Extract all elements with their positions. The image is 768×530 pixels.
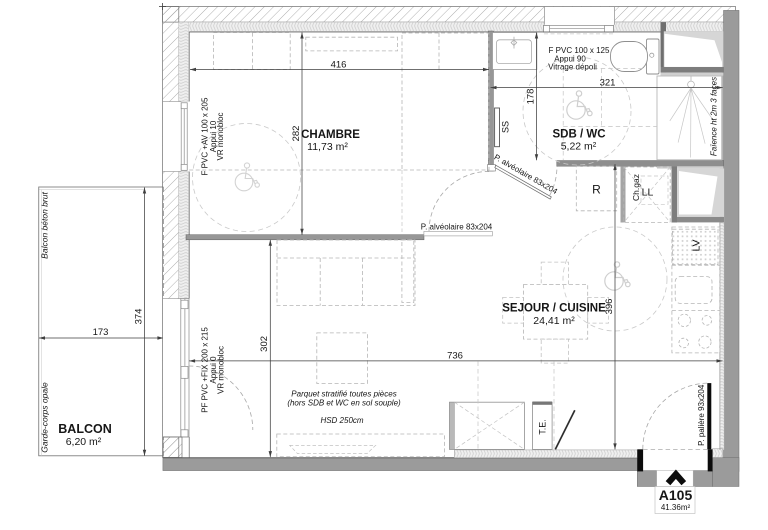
svg-text:Ch.gaz: Ch.gaz	[631, 174, 641, 201]
svg-text:Parquet stratifié toutes pièce: Parquet stratifié toutes pièces	[291, 389, 396, 398]
svg-text:SS: SS	[501, 121, 511, 133]
svg-text:Vitrage dépoli: Vitrage dépoli	[548, 62, 597, 71]
svg-text:CHAMBRE: CHAMBRE	[301, 129, 360, 141]
svg-text:T.E.: T.E.	[538, 419, 548, 435]
svg-text:SEJOUR / CUISINE: SEJOUR / CUISINE	[502, 303, 606, 315]
svg-text:178: 178	[525, 89, 536, 105]
svg-text:P. alvéolaire 83x204: P. alvéolaire 83x204	[421, 223, 493, 232]
svg-text:6,20 m²: 6,20 m²	[66, 436, 102, 448]
svg-text:SDB / WC: SDB / WC	[552, 129, 605, 141]
svg-text:BALCON: BALCON	[58, 422, 111, 436]
svg-text:374: 374	[133, 309, 144, 325]
svg-text:736: 736	[447, 351, 463, 362]
svg-text:24,41 m²: 24,41 m²	[533, 315, 575, 327]
svg-text:41.36m²: 41.36m²	[661, 503, 691, 512]
svg-text:P. palière 93x204: P. palière 93x204	[697, 384, 706, 446]
svg-text:173: 173	[93, 327, 109, 338]
svg-text:HSD 250cm: HSD 250cm	[320, 416, 363, 425]
svg-text:R: R	[592, 183, 601, 197]
svg-text:Balcon béton brut: Balcon béton brut	[40, 192, 50, 259]
svg-text:5,22 m²: 5,22 m²	[561, 141, 597, 153]
svg-text:A105: A105	[659, 487, 693, 503]
svg-text:(hors SDB et WC en sol souple): (hors SDB et WC en sol souple)	[287, 398, 401, 407]
svg-text:11,73 m²: 11,73 m²	[307, 141, 348, 153]
svg-text:416: 416	[331, 59, 347, 70]
svg-text:LL: LL	[642, 187, 654, 199]
svg-text:321: 321	[600, 77, 616, 88]
svg-text:VR monobloc: VR monobloc	[216, 112, 225, 160]
svg-text:302: 302	[259, 336, 270, 352]
svg-text:VR monobloc: VR monobloc	[216, 346, 225, 394]
svg-text:Garde-corps opale: Garde-corps opale	[40, 382, 50, 453]
svg-text:LV: LV	[691, 239, 703, 251]
svg-text:Faïence ht 2m 3 faces: Faïence ht 2m 3 faces	[710, 77, 719, 156]
